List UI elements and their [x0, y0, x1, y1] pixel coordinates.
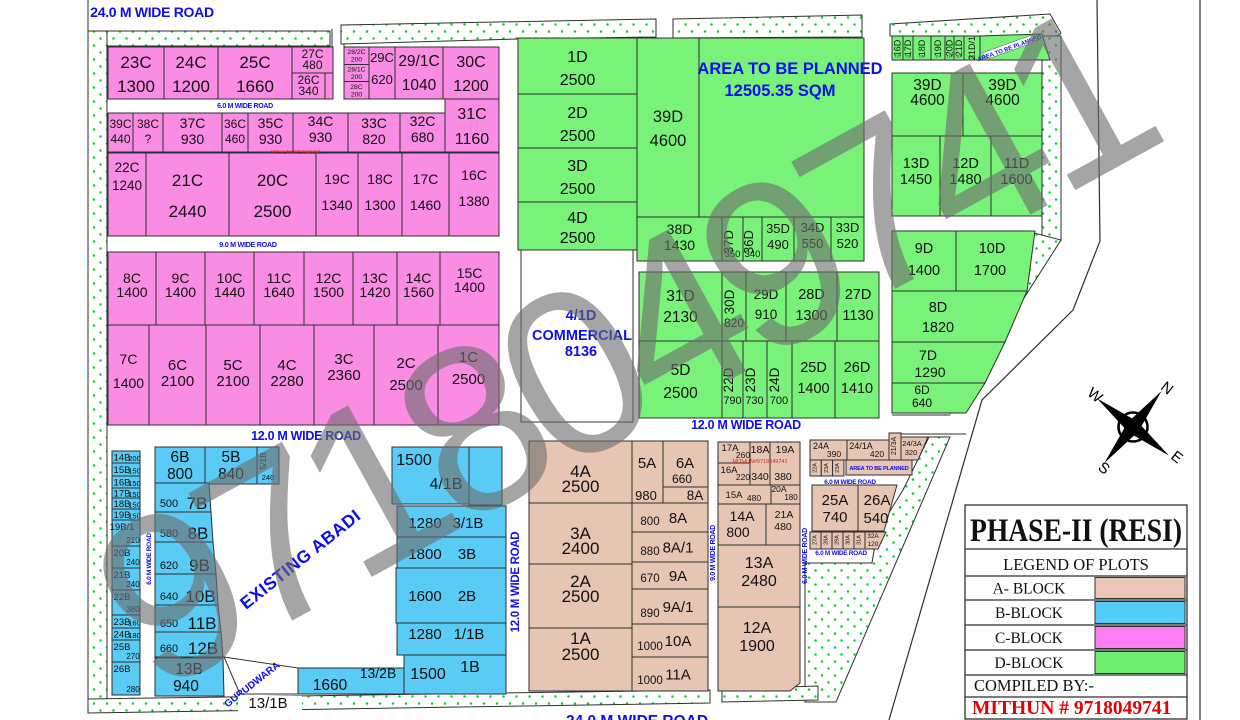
svg-text:1200: 1200	[172, 77, 210, 96]
svg-text:480: 480	[774, 521, 792, 533]
svg-text:35C: 35C	[258, 115, 284, 131]
svg-text:18C: 18C	[367, 171, 393, 187]
svg-text:29A: 29A	[835, 535, 841, 545]
svg-text:8A/1: 8A/1	[663, 540, 694, 557]
svg-text:1380: 1380	[458, 193, 489, 209]
svg-text:800: 800	[640, 516, 659, 528]
svg-text:1280: 1280	[408, 626, 441, 643]
svg-text:MITHUN # 9718049741: MITHUN # 9718049741	[972, 698, 1171, 719]
svg-text:32C: 32C	[410, 113, 436, 129]
svg-text:670: 670	[640, 573, 659, 585]
svg-text:680: 680	[411, 129, 435, 145]
svg-text:6.0 M WIDE ROAD: 6.0 M WIDE ROAD	[217, 103, 273, 110]
svg-text:7C: 7C	[120, 351, 138, 367]
svg-text:1000: 1000	[637, 641, 663, 653]
svg-text:930: 930	[259, 131, 283, 147]
svg-text:1900: 1900	[739, 638, 775, 655]
svg-text:2500: 2500	[560, 72, 596, 89]
svg-text:MITHUN#9718049741: MITHUN#9718049741	[271, 150, 321, 156]
svg-text:480: 480	[302, 58, 322, 72]
svg-text:220: 220	[736, 472, 750, 482]
svg-text:28/1C: 28/1C	[347, 67, 365, 74]
svg-text:800: 800	[726, 524, 750, 540]
svg-text:2440: 2440	[169, 202, 207, 221]
svg-text:180: 180	[784, 493, 798, 502]
svg-text:1660: 1660	[236, 77, 274, 96]
svg-text:1240: 1240	[112, 178, 142, 193]
svg-text:23A: 23A	[824, 463, 830, 473]
svg-text:2D: 2D	[567, 105, 587, 122]
svg-text:340: 340	[298, 84, 318, 98]
svg-text:2500: 2500	[560, 181, 596, 198]
svg-text:280: 280	[126, 685, 140, 694]
svg-text:6.0 M WIDE ROAD: 6.0 M WIDE ROAD	[802, 528, 809, 584]
svg-text:1040: 1040	[402, 77, 437, 94]
svg-text:23A: 23A	[835, 463, 841, 473]
svg-text:120: 120	[868, 541, 879, 548]
svg-text:19C: 19C	[324, 171, 350, 187]
svg-text:2B: 2B	[458, 588, 476, 605]
svg-text:34C: 34C	[308, 113, 334, 129]
svg-text:28C: 28C	[350, 84, 363, 91]
svg-text:24/3A: 24/3A	[902, 439, 922, 448]
svg-text:C-BLOCK: C-BLOCK	[995, 630, 1064, 647]
svg-text:30C: 30C	[456, 54, 485, 71]
svg-text:820: 820	[362, 131, 386, 147]
svg-text:23C: 23C	[120, 53, 151, 72]
svg-text:1D: 1D	[567, 49, 587, 66]
svg-text:31C: 31C	[457, 106, 486, 123]
svg-text:740: 740	[822, 509, 847, 526]
svg-text:2500: 2500	[254, 202, 292, 221]
svg-text:39D: 39D	[653, 108, 683, 126]
svg-text:200: 200	[351, 92, 363, 99]
svg-text:21A: 21A	[775, 509, 794, 521]
svg-text:24.0 M WIDE ROAD: 24.0 M WIDE ROAD	[566, 713, 708, 720]
svg-text:37C: 37C	[180, 115, 206, 131]
svg-text:36C: 36C	[224, 117, 246, 131]
svg-text:1410: 1410	[841, 381, 873, 397]
svg-text:19A: 19A	[776, 444, 795, 456]
svg-text:14A: 14A	[730, 508, 756, 524]
svg-text:1160: 1160	[455, 131, 490, 148]
svg-text:460: 460	[225, 132, 245, 146]
svg-text:18A: 18A	[751, 444, 770, 456]
svg-text:1560: 1560	[403, 284, 434, 300]
svg-text:2100: 2100	[161, 373, 194, 390]
svg-text:10A: 10A	[665, 633, 692, 650]
svg-text:4C: 4C	[277, 357, 296, 374]
svg-text:PHASE-II (RESI): PHASE-II (RESI)	[970, 513, 1182, 549]
svg-text:4600: 4600	[650, 132, 687, 150]
svg-text:1000: 1000	[637, 675, 663, 687]
svg-text:9A: 9A	[669, 568, 687, 585]
svg-text:1290: 1290	[914, 364, 945, 380]
svg-text:1200: 1200	[453, 78, 489, 95]
svg-text:640: 640	[912, 396, 932, 410]
svg-text:1420: 1420	[359, 284, 390, 300]
svg-text:38C: 38C	[137, 117, 159, 131]
svg-text:2100: 2100	[216, 373, 249, 390]
svg-text:22C: 22C	[115, 160, 140, 175]
svg-text:2480: 2480	[741, 573, 777, 590]
svg-text:9.0 M WIDE ROAD: 9.0 M WIDE ROAD	[710, 525, 717, 581]
svg-text:390: 390	[827, 449, 841, 459]
svg-text:1640: 1640	[263, 284, 294, 300]
svg-text:5C: 5C	[223, 357, 242, 374]
svg-text:24C: 24C	[175, 53, 206, 72]
svg-text:1300: 1300	[117, 77, 155, 96]
svg-text:1500: 1500	[410, 666, 446, 683]
svg-text:27A: 27A	[813, 535, 819, 545]
svg-text:7D: 7D	[919, 347, 937, 363]
svg-text:26B: 26B	[114, 664, 131, 675]
svg-text:AREA TO BE PLANNED: AREA TO BE PLANNED	[849, 466, 908, 472]
svg-text:930: 930	[181, 131, 205, 147]
svg-text:21C: 21C	[172, 171, 203, 190]
svg-text:32A: 32A	[867, 533, 879, 540]
svg-text:1440: 1440	[214, 284, 245, 300]
svg-text:28/2C: 28/2C	[347, 49, 365, 56]
svg-text:1300: 1300	[364, 197, 395, 213]
svg-text:25A: 25A	[822, 492, 849, 509]
svg-text:9.0 M WIDE ROAD: 9.0 M WIDE ROAD	[219, 240, 277, 249]
svg-text:1B: 1B	[460, 659, 480, 676]
svg-text:380: 380	[774, 471, 792, 483]
svg-text:1460: 1460	[410, 197, 441, 213]
svg-text:9A/1: 9A/1	[663, 599, 694, 616]
svg-text:26A: 26A	[864, 492, 891, 509]
svg-text:16C: 16C	[461, 167, 487, 183]
svg-text:660: 660	[672, 472, 692, 486]
svg-text:15A: 15A	[726, 490, 744, 501]
svg-text:17C: 17C	[413, 171, 439, 187]
svg-text:20C: 20C	[257, 171, 288, 190]
svg-text:1/1B: 1/1B	[454, 626, 485, 643]
svg-text:890: 890	[640, 608, 659, 620]
svg-text:D-BLOCK: D-BLOCK	[995, 655, 1065, 672]
svg-text:A- BLOCK: A- BLOCK	[993, 581, 1067, 598]
svg-text:29C: 29C	[370, 50, 394, 65]
svg-text:25C: 25C	[239, 53, 270, 72]
svg-text:8A: 8A	[669, 510, 687, 527]
svg-text:2500: 2500	[562, 645, 600, 664]
svg-text:620: 620	[371, 72, 393, 87]
svg-text:2400: 2400	[562, 539, 600, 558]
svg-text:13A: 13A	[745, 555, 774, 572]
svg-text:MITHUN#9718049741: MITHUN#9718049741	[732, 459, 787, 465]
svg-text:1660: 1660	[313, 677, 348, 694]
svg-text:3D: 3D	[567, 158, 587, 175]
svg-text:13/2B: 13/2B	[360, 665, 397, 681]
svg-text:6C: 6C	[168, 357, 187, 374]
svg-text:12A: 12A	[743, 620, 772, 637]
svg-text:930: 930	[309, 129, 333, 145]
svg-text:31A: 31A	[857, 535, 863, 545]
svg-text:8A: 8A	[687, 488, 704, 503]
svg-text:420: 420	[870, 449, 884, 459]
svg-text:COMPILED BY:-: COMPILED BY:-	[974, 676, 1094, 695]
svg-text:1340: 1340	[321, 197, 352, 213]
svg-text:29/1C: 29/1C	[398, 53, 439, 70]
svg-text:24.0 M WIDE ROAD: 24.0 M WIDE ROAD	[90, 4, 214, 20]
svg-text:LEGEND OF PLOTS: LEGEND OF PLOTS	[1003, 555, 1149, 574]
svg-text:?: ?	[145, 132, 152, 146]
svg-text:6.0 M WIDE ROAD: 6.0 M WIDE ROAD	[815, 550, 867, 557]
svg-text:200: 200	[351, 57, 363, 64]
svg-text:320: 320	[905, 448, 918, 457]
svg-text:1500: 1500	[313, 284, 344, 300]
svg-text:2500: 2500	[560, 128, 596, 145]
svg-text:11A: 11A	[665, 667, 691, 684]
svg-text:28A: 28A	[824, 535, 830, 545]
svg-text:340: 340	[751, 471, 769, 483]
svg-text:540: 540	[863, 510, 888, 527]
svg-text:880: 880	[640, 546, 659, 558]
svg-text:1400: 1400	[116, 284, 147, 300]
svg-text:2500: 2500	[562, 587, 600, 606]
svg-text:33C: 33C	[361, 115, 387, 131]
svg-text:1400: 1400	[113, 375, 144, 391]
svg-text:480: 480	[747, 493, 761, 503]
svg-text:30A: 30A	[846, 535, 852, 545]
svg-text:980: 980	[635, 488, 657, 503]
svg-text:B-BLOCK: B-BLOCK	[995, 605, 1064, 622]
svg-text:22A: 22A	[813, 463, 819, 473]
svg-text:39C: 39C	[109, 117, 131, 131]
svg-text:21/3A: 21/3A	[891, 437, 898, 456]
svg-text:440: 440	[110, 132, 130, 146]
svg-text:1400: 1400	[165, 284, 196, 300]
svg-text:6D: 6D	[914, 383, 930, 397]
svg-text:200: 200	[351, 74, 363, 81]
